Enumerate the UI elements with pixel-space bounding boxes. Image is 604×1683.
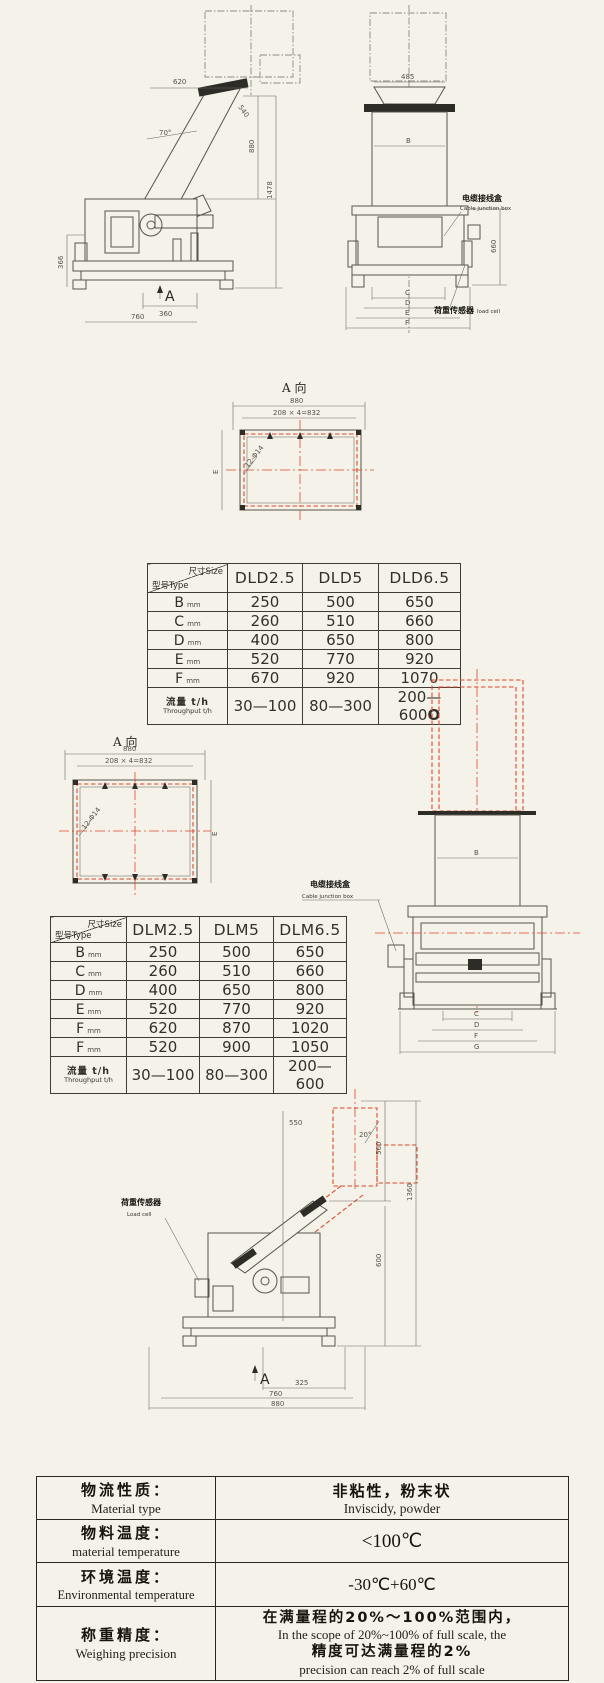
dim-letter: F: [76, 1021, 84, 1037]
dim-unit: mm: [88, 1008, 102, 1016]
dim-angle-label: 20°: [359, 1131, 371, 1139]
dim-325-label: 325: [295, 1379, 308, 1387]
dim-flange-label: 540: [236, 104, 250, 120]
dim-letter: B: [75, 945, 85, 961]
dim-b-label: B: [406, 137, 411, 145]
spec-label-cell: 称重精度： Weighing precision: [37, 1607, 216, 1681]
spec-value-cell: -30℃+60℃: [216, 1563, 569, 1607]
dim-letter: B: [174, 595, 184, 611]
throughput-label-en: Throughput t/h: [148, 708, 227, 715]
junction-box-label-en: Cable junction box: [302, 894, 354, 900]
dim-d-label: D: [405, 299, 410, 307]
dim-560-label: 560: [375, 1142, 383, 1155]
dim-label-cell: Dmm: [51, 981, 127, 1000]
side-view-drawing-2: 550 20° 560 1360 600 325 760 880 A: [113, 1081, 433, 1421]
load-cell-label-cn: 荷重传感器: [120, 1197, 162, 1207]
spec-value-cn: 在满量程的20%～100%范围内，: [220, 1609, 564, 1627]
dim-660-label: 660: [490, 240, 498, 253]
dim-value-cell: 400: [228, 631, 303, 650]
dim-label-cell: Fmm: [148, 669, 228, 688]
dim-550-label: 550: [289, 1119, 302, 1127]
dim-880-label: 880: [248, 140, 256, 153]
dim-e-label: E: [405, 309, 409, 317]
dim-letter: E: [175, 652, 184, 668]
dim-label-cell: Cmm: [148, 612, 228, 631]
dim-label-cell: Dmm: [148, 631, 228, 650]
machine-outline: [348, 87, 480, 287]
dim-unit: mm: [186, 677, 200, 685]
catalog-page: 620 70° 540 880 1478 366 360 760 A: [0, 0, 604, 1683]
dim-value-cell: 800: [379, 631, 461, 650]
corner-type-label: 型号Type: [152, 579, 189, 591]
dim-value-cell: 250: [127, 943, 200, 962]
dim-1360-label: 1360: [406, 1183, 414, 1201]
dim-880-label: 880: [123, 745, 136, 753]
model-header-cell: DLM6.5: [274, 917, 347, 943]
table-corner-cell: 尺寸Size 型号Type: [148, 564, 228, 593]
spec-label-en: Material type: [41, 1501, 211, 1517]
dim-value-cell: 920: [274, 1000, 347, 1019]
front-view-drawing-1: 485 B 660 C D E F 电缆接线盒 Cable junction b…: [312, 3, 572, 348]
dim-letter: D: [75, 983, 86, 999]
junction-box-label-cn: 电缆接线盒: [462, 193, 503, 203]
dim-label-cell: Bmm: [148, 593, 228, 612]
dim-letter: E: [76, 1002, 85, 1018]
dim-value-cell: 1050: [274, 1038, 347, 1057]
dim-letter: D: [174, 633, 185, 649]
callout-labels: 荷重传感器 Load cell: [120, 1197, 199, 1281]
model-header-cell: DLM5: [200, 917, 274, 943]
spec-label-en: Environmental temperature: [41, 1588, 211, 1603]
dim-366-label: 366: [57, 255, 65, 269]
spec-value-cn: 精度可达满量程的2%: [220, 1643, 564, 1661]
dim-g-label: G: [474, 1043, 479, 1051]
spec-label-cell: 环境温度： Environmental temperature: [37, 1563, 216, 1607]
dim-value-cell: 400: [127, 981, 200, 1000]
dim-unit: mm: [187, 601, 201, 609]
dim-b-label: B: [474, 849, 479, 857]
model-header-cell: DLD2.5: [228, 564, 303, 593]
spec-label-cn: 物料温度：: [41, 1522, 211, 1543]
dim-e-label: E: [211, 832, 219, 836]
dim-value-cell: 870: [200, 1019, 274, 1038]
spec-value-en: In the scope of 20%~100% of full scale, …: [220, 1627, 564, 1643]
dim-value-cell: 260: [127, 962, 200, 981]
corner-size-label: 尺寸Size: [189, 565, 223, 577]
dim-letter: C: [75, 964, 85, 980]
model-header-cell: DLD6.5: [379, 564, 461, 593]
spec-value-cell: 非粘性，粉末状 Inviscidy, powder: [216, 1477, 569, 1520]
dim-value-cell: 650: [379, 593, 461, 612]
model-header-cell: DLM2.5: [127, 917, 200, 943]
dim-1478-label: 1478: [266, 181, 274, 199]
spec-value-cell: <100℃: [216, 1520, 569, 1563]
spec-value-cn: 非粘性，粉末状: [220, 1480, 564, 1501]
dim-unit: mm: [89, 989, 103, 997]
dim-d-label: D: [474, 1021, 479, 1029]
dlm-dimension-table: 尺寸Size 型号Type DLM2.5 DLM5 DLM6.5 Bmm 250…: [50, 916, 347, 1094]
load-cell-label-en: Load cell: [127, 1212, 152, 1218]
dim-value-cell: 770: [200, 1000, 274, 1019]
dim-value-cell: 800: [274, 981, 347, 1000]
dim-c-label: C: [405, 289, 410, 297]
dim-label-cell: Cmm: [51, 962, 127, 981]
dim-value-cell: 650: [274, 943, 347, 962]
dim-label-cell: Fmm: [51, 1038, 127, 1057]
dim-holes-label: 208 × 4=832: [273, 409, 320, 417]
machine-outline: [183, 1196, 335, 1346]
spec-value-cell: 在满量程的20%～100%范围内， In the scope of 20%~10…: [216, 1607, 569, 1681]
spec-value: <100℃: [220, 1530, 564, 1553]
dim-letter: C: [174, 614, 184, 630]
spec-label-en: Weighing precision: [41, 1646, 211, 1662]
dim-value-cell: 260: [228, 612, 303, 631]
dim-label-cell: Emm: [148, 650, 228, 669]
dim-value-cell: 1020: [274, 1019, 347, 1038]
dim-f-label: F: [474, 1032, 478, 1040]
dim-620-label: 620: [173, 78, 186, 86]
dim-angle-label: 70°: [159, 129, 171, 137]
machine-outline: [73, 78, 248, 289]
spec-label-en: material temperature: [41, 1544, 211, 1560]
dim-value-cell: 500: [200, 943, 274, 962]
dim-e-label: E: [212, 470, 220, 474]
spec-label-cell: 物料温度： material temperature: [37, 1520, 216, 1563]
optional-hopper-outline: [205, 5, 300, 95]
dim-760-label: 760: [269, 1390, 282, 1398]
spec-label-cn: 物流性质：: [41, 1479, 211, 1500]
view-a-drawing-2: A 向 880 208 × 4=832 12-Φ14 E: [35, 718, 260, 903]
dim-value-cell: 900: [200, 1038, 274, 1057]
dim-value-cell: 510: [303, 612, 379, 631]
dim-value-cell: 650: [303, 631, 379, 650]
dim-880-label: 880: [290, 397, 303, 405]
dim-holes-label: 208 × 4=832: [105, 757, 152, 765]
dim-value-cell: 510: [200, 962, 274, 981]
spec-value: -30℃+60℃: [220, 1575, 564, 1595]
holes-12-phi14-label: 12-Φ14: [80, 806, 103, 832]
spec-label-cell: 物流性质： Material type: [37, 1477, 216, 1520]
load-cell-label-en: load cell: [477, 309, 500, 315]
junction-box-label-en: Cable junction box: [460, 206, 512, 212]
dim-unit: mm: [88, 970, 102, 978]
dim-unit: mm: [87, 1046, 101, 1054]
dim-760-label: 760: [131, 313, 144, 321]
machine-outline: [375, 813, 580, 1009]
spec-value-en: precision can reach 2% of full scale: [220, 1662, 564, 1678]
view-a-arrow-label: A: [165, 289, 175, 305]
dim-value-cell: 660: [379, 612, 461, 631]
throughput-label-cn: 流量 t/h: [51, 1067, 126, 1077]
junction-box-label-cn: 电缆接线盒: [310, 879, 351, 889]
dim-unit: mm: [88, 951, 102, 959]
dim-f-label: F: [405, 319, 409, 327]
corner-type-label: 型号Type: [55, 929, 92, 941]
view-a-drawing-1: A 向 880 208 × 4=832 12-Φ14 E: [180, 352, 405, 530]
throughput-label-cn: 流量 t/h: [148, 698, 227, 708]
dim-880-label: 880: [271, 1400, 284, 1408]
dim-unit: mm: [187, 658, 201, 666]
view-a-title: A 向: [281, 380, 306, 395]
side-view-drawing-1: 620 70° 540 880 1478 366 360 760 A: [55, 3, 305, 333]
dim-label-cell: Bmm: [51, 943, 127, 962]
dim-letter: F: [76, 1040, 84, 1056]
dim-unit: mm: [187, 620, 201, 628]
dim-value-cell: 250: [228, 593, 303, 612]
corner-size-label: 尺寸Size: [88, 918, 122, 930]
dim-value-cell: 500: [303, 593, 379, 612]
specification-table: 物流性质： Material type 非粘性，粉末状 Inviscidy, p…: [36, 1476, 569, 1681]
spec-label-cn: 称重精度：: [41, 1624, 211, 1645]
dim-label-cell: Emm: [51, 1000, 127, 1019]
dim-600-label: 600: [375, 1254, 383, 1267]
dim-label-cell: Fmm: [51, 1019, 127, 1038]
view-a-arrow-label: A: [260, 1372, 270, 1388]
holes-12-phi14-label: 12-Φ14: [243, 444, 266, 470]
table-corner-cell: 尺寸Size 型号Type: [51, 917, 127, 943]
dim-value-cell: 520: [127, 1038, 200, 1057]
dim-c-label: C: [474, 1010, 479, 1018]
model-header-cell: DLD5: [303, 564, 379, 593]
spec-value-en: Inviscidy, powder: [220, 1501, 564, 1517]
dim-value-cell: 620: [127, 1019, 200, 1038]
dim-value-cell: 520: [127, 1000, 200, 1019]
dim-unit: mm: [87, 1027, 101, 1035]
dim-value-cell: 650: [200, 981, 274, 1000]
dim-360-label: 360: [159, 310, 172, 318]
spec-label-cn: 环境温度：: [41, 1566, 211, 1587]
dim-letter: F: [175, 671, 183, 687]
load-cell-label-cn: 荷重传感器: [433, 305, 475, 315]
dim-485-label: 485: [401, 73, 414, 81]
dim-unit: mm: [188, 639, 202, 647]
dim-value-cell: 660: [274, 962, 347, 981]
